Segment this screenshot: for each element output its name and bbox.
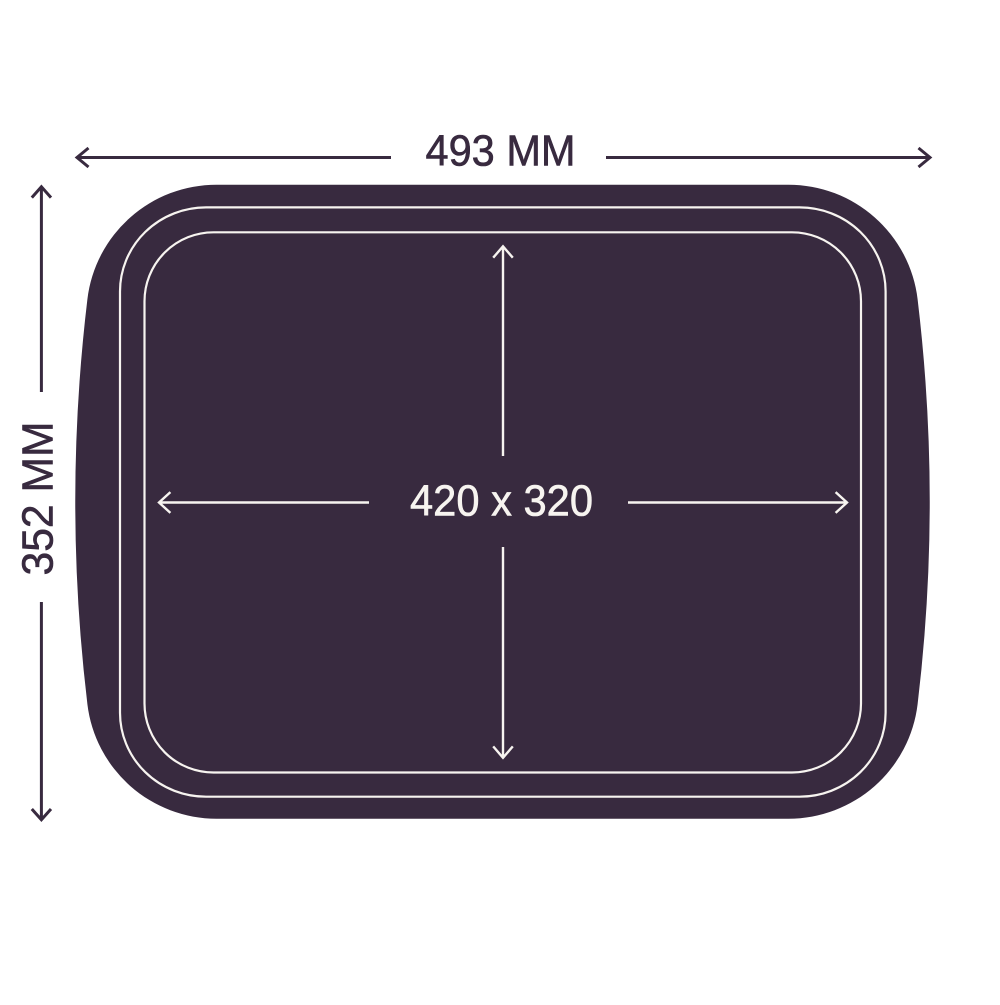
svg-text:420 x 320: 420 x 320 bbox=[410, 477, 593, 526]
svg-text:352 MM: 352 MM bbox=[14, 422, 63, 576]
svg-text:493 MM: 493 MM bbox=[426, 126, 576, 175]
